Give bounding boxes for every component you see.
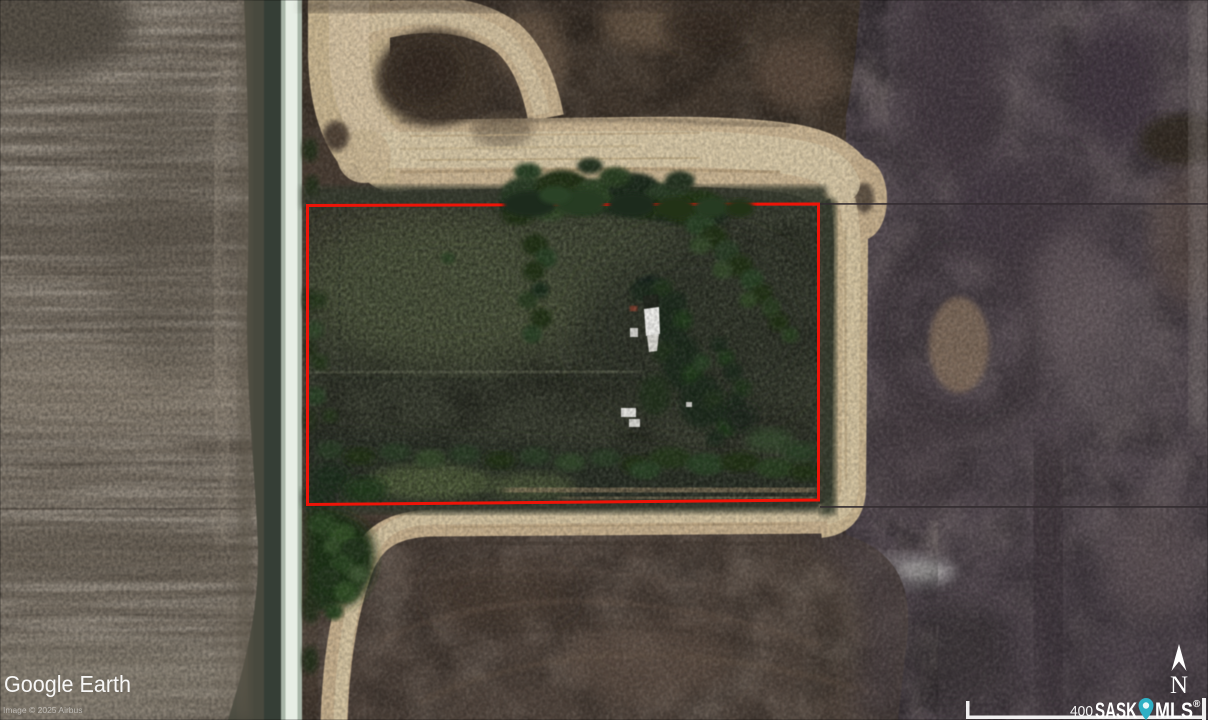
svg-text:MLS: MLS [1155, 698, 1193, 720]
svg-text:400: 400 [1070, 703, 1093, 720]
svg-text:Google Earth: Google Earth [4, 671, 131, 697]
svg-text:®: ® [1193, 699, 1201, 710]
svg-text:Image © 2025 Airbus: Image © 2025 Airbus [3, 705, 83, 715]
svg-text:SASK: SASK [1095, 698, 1137, 720]
svg-text:N: N [1170, 672, 1188, 699]
